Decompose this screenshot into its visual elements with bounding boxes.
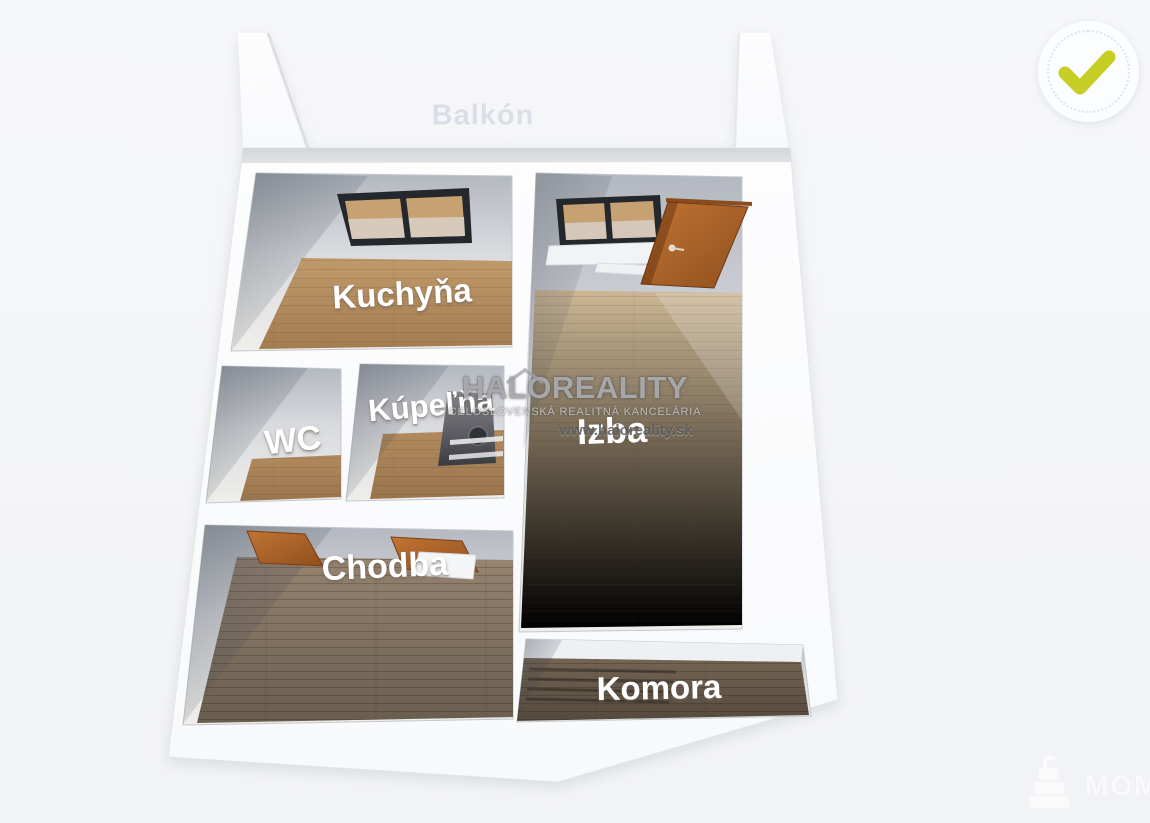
brand-subtitle: CELOSLOVENSKÁ REALITNÁ KANCELÁRIA bbox=[449, 407, 702, 418]
brand-website: www.haloreality.sk bbox=[500, 423, 753, 438]
room-label-kuchyna: Kuchyňa bbox=[331, 271, 472, 316]
room-label-balkon: Balkón bbox=[432, 100, 535, 133]
balcony-parapet bbox=[241, 148, 792, 163]
building-icon bbox=[1027, 752, 1073, 810]
corner-watermark: MOM bbox=[1027, 752, 1150, 810]
house-roof-icon bbox=[505, 367, 545, 384]
verified-badge bbox=[1038, 21, 1139, 122]
checkmark-icon bbox=[1038, 21, 1139, 122]
room-label-komora: Komora bbox=[596, 668, 721, 708]
room-label-chodba: Chodba bbox=[321, 545, 449, 589]
brand-name: HALOREALITY bbox=[449, 372, 702, 403]
brand-watermark: HALOREALITY CELOSLOVENSKÁ REALITNÁ KANCE… bbox=[449, 372, 702, 438]
room-label-wc: WC bbox=[263, 419, 323, 464]
room-kuchyna-render bbox=[231, 173, 512, 351]
corner-logo-text: MOM bbox=[1085, 770, 1150, 810]
floorplan-image: Balkón Kuchyňa Izba WC Kúpeľňa Chodba Ko… bbox=[0, 0, 1150, 823]
